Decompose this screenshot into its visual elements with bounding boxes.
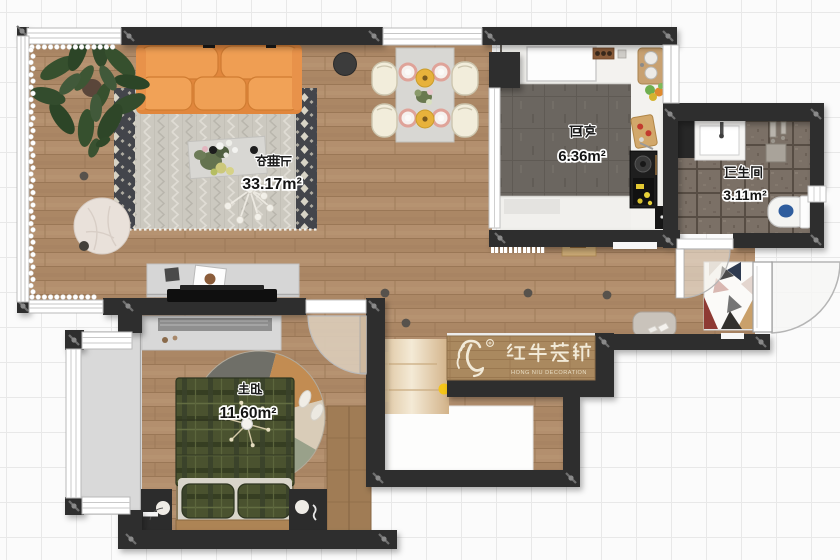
svg-text:33.17m²: 33.17m² [242, 176, 302, 193]
svg-text:HONG NIU DECORATION: HONG NIU DECORATION [511, 370, 587, 376]
svg-text:11.60m²: 11.60m² [220, 405, 277, 422]
svg-text:3.11m²: 3.11m² [723, 187, 767, 203]
svg-text:6.36m²: 6.36m² [558, 148, 606, 165]
